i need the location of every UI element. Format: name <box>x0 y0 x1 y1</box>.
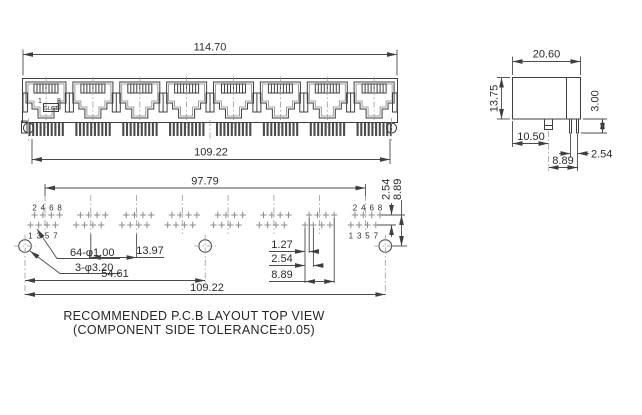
dim-text-stagger: 1.27 <box>271 239 292 251</box>
side-view: 20.60 13.75 3.00 10.50 2.54 <box>489 49 613 172</box>
dim-side-pin-protrusion: 3.00 <box>581 90 607 133</box>
dim-text-side-height: 13.75 <box>489 85 501 113</box>
dim-text-port-centers-span: 97.79 <box>191 176 219 188</box>
dim-text-row-to-hole: 8.89 <box>392 179 404 200</box>
dim-side-peg-offset: 10.50 <box>513 121 549 171</box>
dim-pcb-half-span: 54.61 <box>25 268 205 281</box>
svg-text:6: 6 <box>369 204 374 213</box>
dim-text-side-peg-offset: 10.50 <box>517 131 545 143</box>
dim-text-side-peg-to-pins: 8.89 <box>552 155 573 167</box>
dim-pcb-mount-hole-span: 109.22 <box>25 282 385 295</box>
dim-pcb-port-centers-span: 97.79 <box>45 176 365 197</box>
dim-front-overall-width: 114.70 <box>23 42 397 76</box>
engineering-drawing-page: 1 8 GLGT 114.70 109.22 20.60 <box>0 0 642 415</box>
dim-side-depth: 20.60 <box>513 49 581 76</box>
svg-text:5: 5 <box>45 232 50 241</box>
side-pin-2 <box>577 119 579 133</box>
svg-text:8: 8 <box>378 204 383 213</box>
svg-text:5: 5 <box>365 232 370 241</box>
svg-text:2: 2 <box>353 204 358 213</box>
dim-side-peg-to-pins: 8.89 <box>549 155 578 168</box>
svg-text:3: 3 <box>357 232 362 241</box>
dim-text-half-span: 54.61 <box>101 268 129 280</box>
svg-text:4: 4 <box>361 204 366 213</box>
svg-text:3: 3 <box>36 232 41 241</box>
dim-text-side-pin-pitch: 2.54 <box>591 149 612 161</box>
dim-text-front-overall: 114.70 <box>194 42 227 54</box>
front-view: 1 8 GLGT 114.70 109.22 <box>22 42 398 165</box>
svg-text:1: 1 <box>349 232 354 241</box>
dim-text-pitch: 2.54 <box>271 253 292 265</box>
dim-text-front-pin-span: 109.22 <box>194 147 228 159</box>
port1-pin1-label: 1 <box>38 98 42 105</box>
dim-front-pin-span: 109.22 <box>32 139 390 164</box>
dim-side-height: 13.75 <box>489 78 511 120</box>
technical-drawing-canvas: 1 8 GLGT 114.70 109.22 20.60 <box>0 0 642 415</box>
dim-text-row-pitch: 2.54 <box>381 179 393 200</box>
svg-text:2: 2 <box>32 204 37 213</box>
pcb-layout-view: 2 4 6 8 1 3 5 7 2 4 6 8 1 3 5 7 97.79 <box>14 176 407 299</box>
dim-text-side-pin-protrusion: 3.00 <box>590 90 602 111</box>
dim-text-side-depth: 20.60 <box>533 49 561 61</box>
side-pin-1 <box>570 119 572 133</box>
dim-pcb-row-to-hole-right: 8.89 <box>392 179 407 246</box>
mounting-peg <box>545 119 553 130</box>
title-line2: (COMPONENT SIDE TOLERANCE±0.05) <box>73 323 315 337</box>
side-body-outline <box>513 78 581 120</box>
svg-text:6: 6 <box>49 204 54 213</box>
note-text-pin-holes: 64-φ1.00 <box>70 247 114 259</box>
title-line1: RECOMMENDED P.C.B LAYOUT TOP VIEW <box>63 309 324 323</box>
svg-text:8: 8 <box>57 204 62 213</box>
note-pin-holes: 64-φ1.00 <box>37 229 120 259</box>
dim-text-mount-hole-span: 109.22 <box>190 282 224 294</box>
dim-pcb-group-span: 8.89 <box>269 269 334 282</box>
dim-text-port-pitch: 13.97 <box>136 245 164 257</box>
svg-text:7: 7 <box>53 232 58 241</box>
title-block: RECOMMENDED P.C.B LAYOUT TOP VIEW (COMPO… <box>63 309 324 337</box>
svg-text:7: 7 <box>374 232 379 241</box>
dim-text-group-span: 8.89 <box>271 269 292 281</box>
logo-text: GLGT <box>44 106 60 112</box>
pin-hole-groups <box>27 195 383 234</box>
svg-text:1: 1 <box>28 232 33 241</box>
svg-text:4: 4 <box>41 204 46 213</box>
